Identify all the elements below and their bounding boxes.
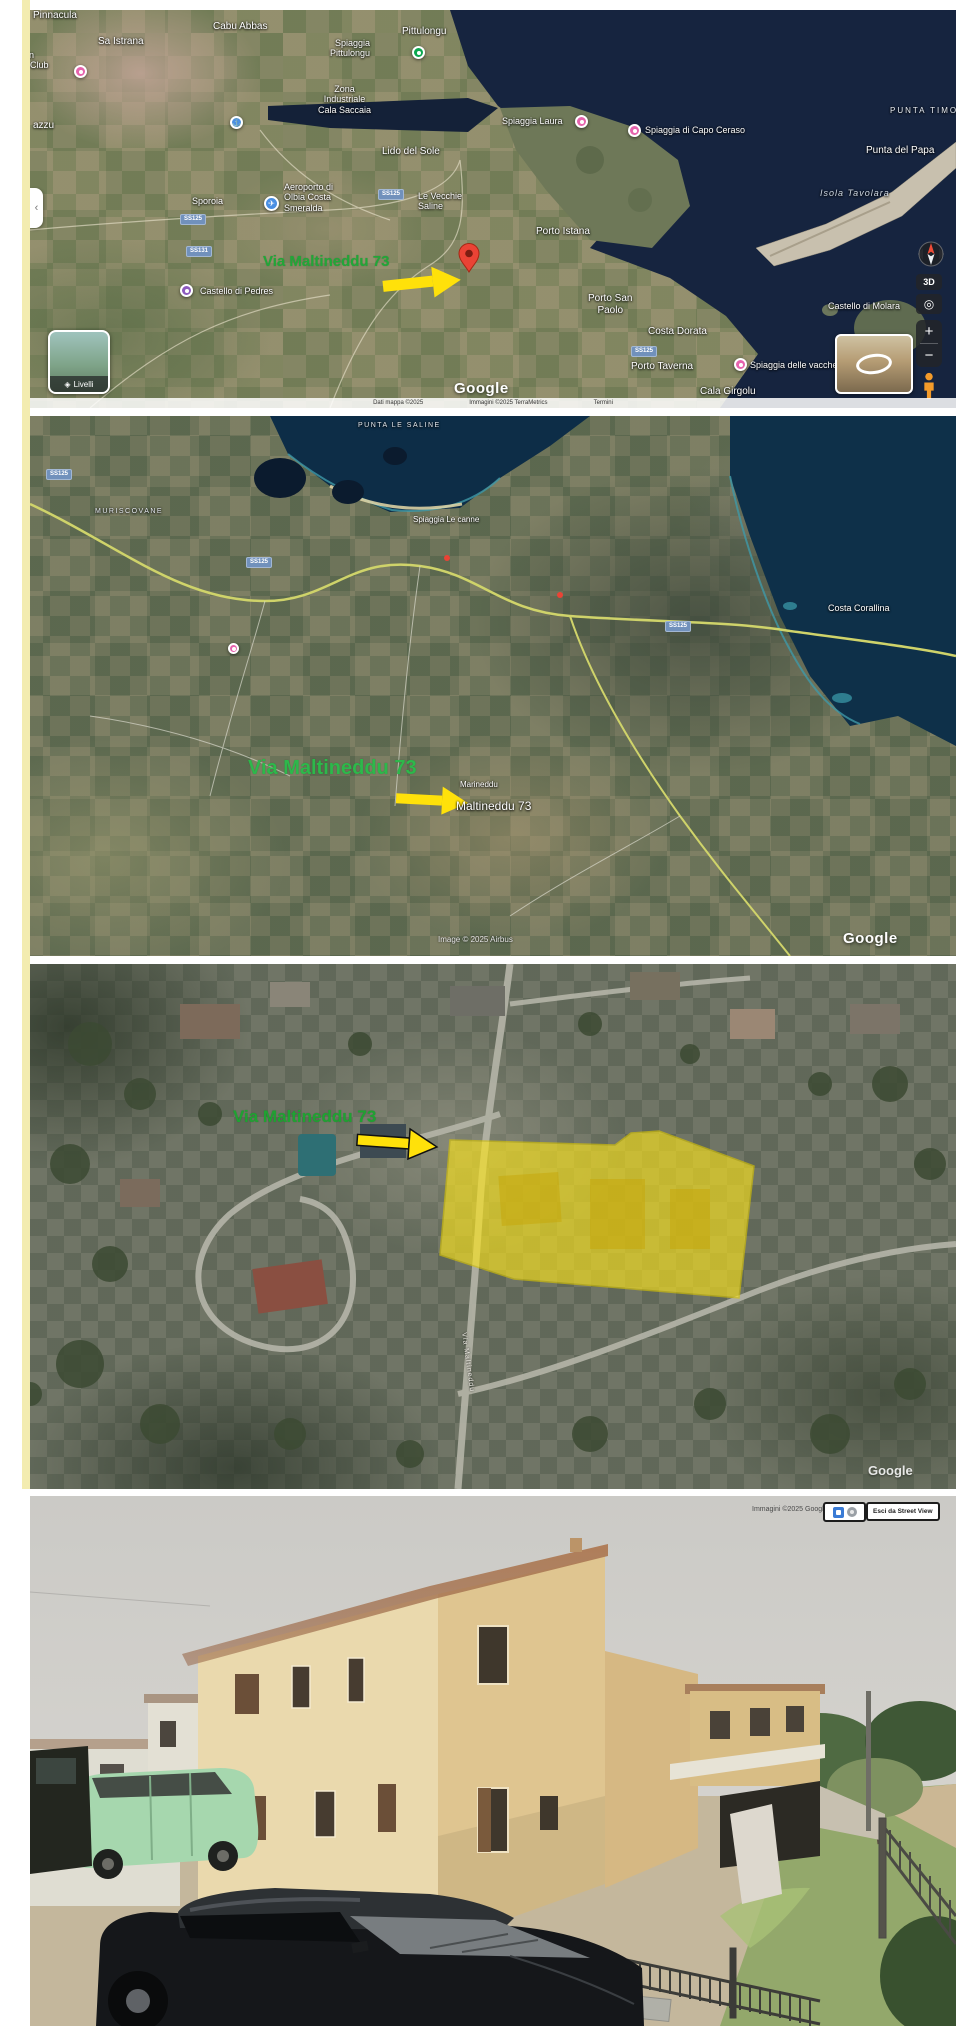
label-maltineddu-73: Maltineddu 73 [456, 800, 531, 814]
label-porto-san-paolo: Porto San Paolo [588, 293, 632, 316]
layers-label: Livelli [74, 380, 94, 389]
3d-button[interactable]: 3D [916, 274, 942, 290]
dark-van [30, 1746, 92, 1874]
label-airport: Aeroporto di Olbia Costa Smeralda [284, 182, 333, 213]
page-left-edge [22, 0, 30, 1489]
label-spiaggia-delle-vacche: Spiaggia delle vacche [750, 360, 838, 370]
streetview-loop-icon [855, 352, 893, 377]
label-costa-corallina: Costa Corallina [828, 603, 890, 613]
annotation-address: Via Maltineddu 73 [233, 1107, 376, 1127]
zoom-out-button[interactable]: − [916, 344, 942, 367]
label-muriscovane: MURISCOVANE [95, 508, 163, 516]
label-lido-del-sole: Lido del Sole [382, 146, 440, 158]
label-isola-tavolara: Isola Tavolara [820, 188, 890, 198]
attribution-terms[interactable]: Termini [594, 400, 613, 406]
streetview-photo[interactable]: Immagini ©2025 Google Esci da Street Vie… [30, 1496, 956, 2026]
label-sporoia: Sporoia [192, 196, 223, 206]
shield-ss125-c: SS125 [631, 346, 657, 357]
label-punta-timone: PUNTA TIMONE [890, 106, 956, 115]
shield-ss125-a: SS125 [180, 214, 206, 225]
shield-ss125-d: SS125 [46, 469, 72, 480]
google-logo: Google [454, 380, 509, 397]
label-spiaggia-laura: Spiaggia Laura [502, 116, 563, 126]
label-castello-di-molara: Castello di Molara [828, 301, 900, 311]
pin-spiaggia-delle-vacche[interactable] [734, 358, 747, 371]
side-panel-toggle[interactable]: ‹ [30, 188, 43, 228]
layers-button[interactable]: ◈ Livelli [48, 330, 110, 394]
label-cabu-abbas: Cabu Abbas [213, 21, 268, 33]
zoom-in-button[interactable]: + [916, 320, 942, 343]
green-hatchback-car [68, 1768, 258, 1879]
pin-capo-ceraso[interactable] [628, 124, 641, 137]
label-capo-ceraso: Spiaggia di Capo Ceraso [645, 125, 745, 135]
shield-ss125-e: SS125 [246, 557, 272, 568]
pin-country-club[interactable] [74, 65, 87, 78]
compass-mini-icon[interactable] [847, 1507, 857, 1517]
label-pittulongu: Pittulongu [402, 26, 446, 38]
label-porto-istana: Porto Istana [536, 226, 590, 238]
page: PinnaculaSa IstranaCabu AbbasPittulonguS… [0, 0, 967, 2026]
photo-scene [30, 1496, 956, 2026]
map-midrange-satellite[interactable]: PUNTA LE SALINEMURISCOVANESpiaggia Le ca… [30, 416, 956, 956]
shield-ss125-f: SS125 [665, 621, 691, 632]
google-logo: Google [868, 1464, 913, 1479]
chevron-left-icon: ‹ [35, 202, 39, 214]
label-zona-industriale: Zona Industriale Cala Saccaia [318, 84, 371, 115]
pegman-icon[interactable] [920, 372, 938, 400]
map3-labels: Via Maltineddu 73Via MaltinedduGoogle [30, 964, 956, 1489]
attribution-imagery: Immagini ©2025 TerraMetrics [469, 400, 547, 406]
pegman-figure [920, 372, 938, 400]
layers-icon: ◈ [64, 380, 70, 389]
streetview-toggle-buttons[interactable] [823, 1502, 866, 1522]
map-attribution-bar: Dati mappa ©2025 Immagini ©2025 TerraMet… [30, 398, 956, 408]
label-country-club: Sardinian Country Club [30, 50, 49, 71]
compass-needle-icon [916, 238, 946, 270]
exit-streetview-button[interactable]: Esci da Street View [866, 1502, 940, 1521]
pin-spiaggia-pittulongu[interactable] [412, 46, 425, 59]
annotation-address: Via Maltineddu 73 [248, 757, 417, 780]
map-view-icon[interactable] [833, 1507, 844, 1518]
label-pinnacula: Pinnacula [33, 10, 77, 22]
label-porto-taverna: Porto Taverna [631, 361, 693, 373]
streetview-preview[interactable] [835, 334, 913, 394]
label-costa-dorata: Costa Dorata [648, 326, 707, 338]
pin-port[interactable]: ⚓ [230, 116, 243, 129]
label-castello-di-pedres: Castello di Pedres [200, 286, 273, 296]
label-spiaggia-le-canne: Spiaggia Le canne [413, 515, 479, 524]
pole [866, 1691, 871, 1831]
map-attribution: Image © 2025 Airbus [438, 935, 513, 944]
label-punta-le-saline: PUNTA LE SALINE [358, 422, 441, 430]
label-sa-istrana: Sa Istrana [98, 36, 144, 48]
compass-control[interactable] [916, 238, 946, 270]
shield-ss131: SS131 [186, 246, 212, 257]
google-logo: Google [843, 930, 898, 947]
label-punta-del-papa: Punta del Papa [866, 145, 934, 157]
label-spiaggia-pittulongu: Spiaggia Pittulongu [330, 38, 370, 59]
label-street-via-maltineddu: Via Maltineddu [459, 1332, 475, 1393]
zoom-controls: + − [916, 320, 942, 367]
label-le-vecchie-saline: Le Vecchie Saline [418, 191, 462, 212]
target-icon: ◎ [924, 297, 934, 311]
pin-castello-di-pedres[interactable] [180, 284, 193, 297]
map2-labels: PUNTA LE SALINEMURISCOVANESpiaggia Le ca… [30, 416, 956, 956]
pin-via-agostino[interactable] [228, 643, 239, 654]
reset-view-button[interactable]: ◎ [916, 294, 942, 314]
annotation-address: Via Maltineddu 73 [263, 253, 389, 270]
pin-airport[interactable]: ✈ [264, 196, 279, 211]
photo-attribution: Immagini ©2025 Google [752, 1506, 828, 1513]
map-parcel-closeup[interactable]: Via Maltineddu 73Via MaltinedduGoogle [30, 964, 956, 1489]
attribution-data: Dati mappa ©2025 [373, 400, 423, 406]
label-azzu: azzu [33, 120, 54, 132]
pin-spiaggia-laura[interactable] [575, 115, 588, 128]
label-cala-girgolu: Cala Girgolu [700, 386, 756, 398]
shield-ss125-b: SS125 [378, 189, 404, 200]
map-overview-satellite[interactable]: PinnaculaSa IstranaCabu AbbasPittulonguS… [30, 10, 956, 408]
label-marineddu: Marineddu [460, 780, 498, 789]
map1-labels: PinnaculaSa IstranaCabu AbbasPittulonguS… [30, 10, 956, 408]
